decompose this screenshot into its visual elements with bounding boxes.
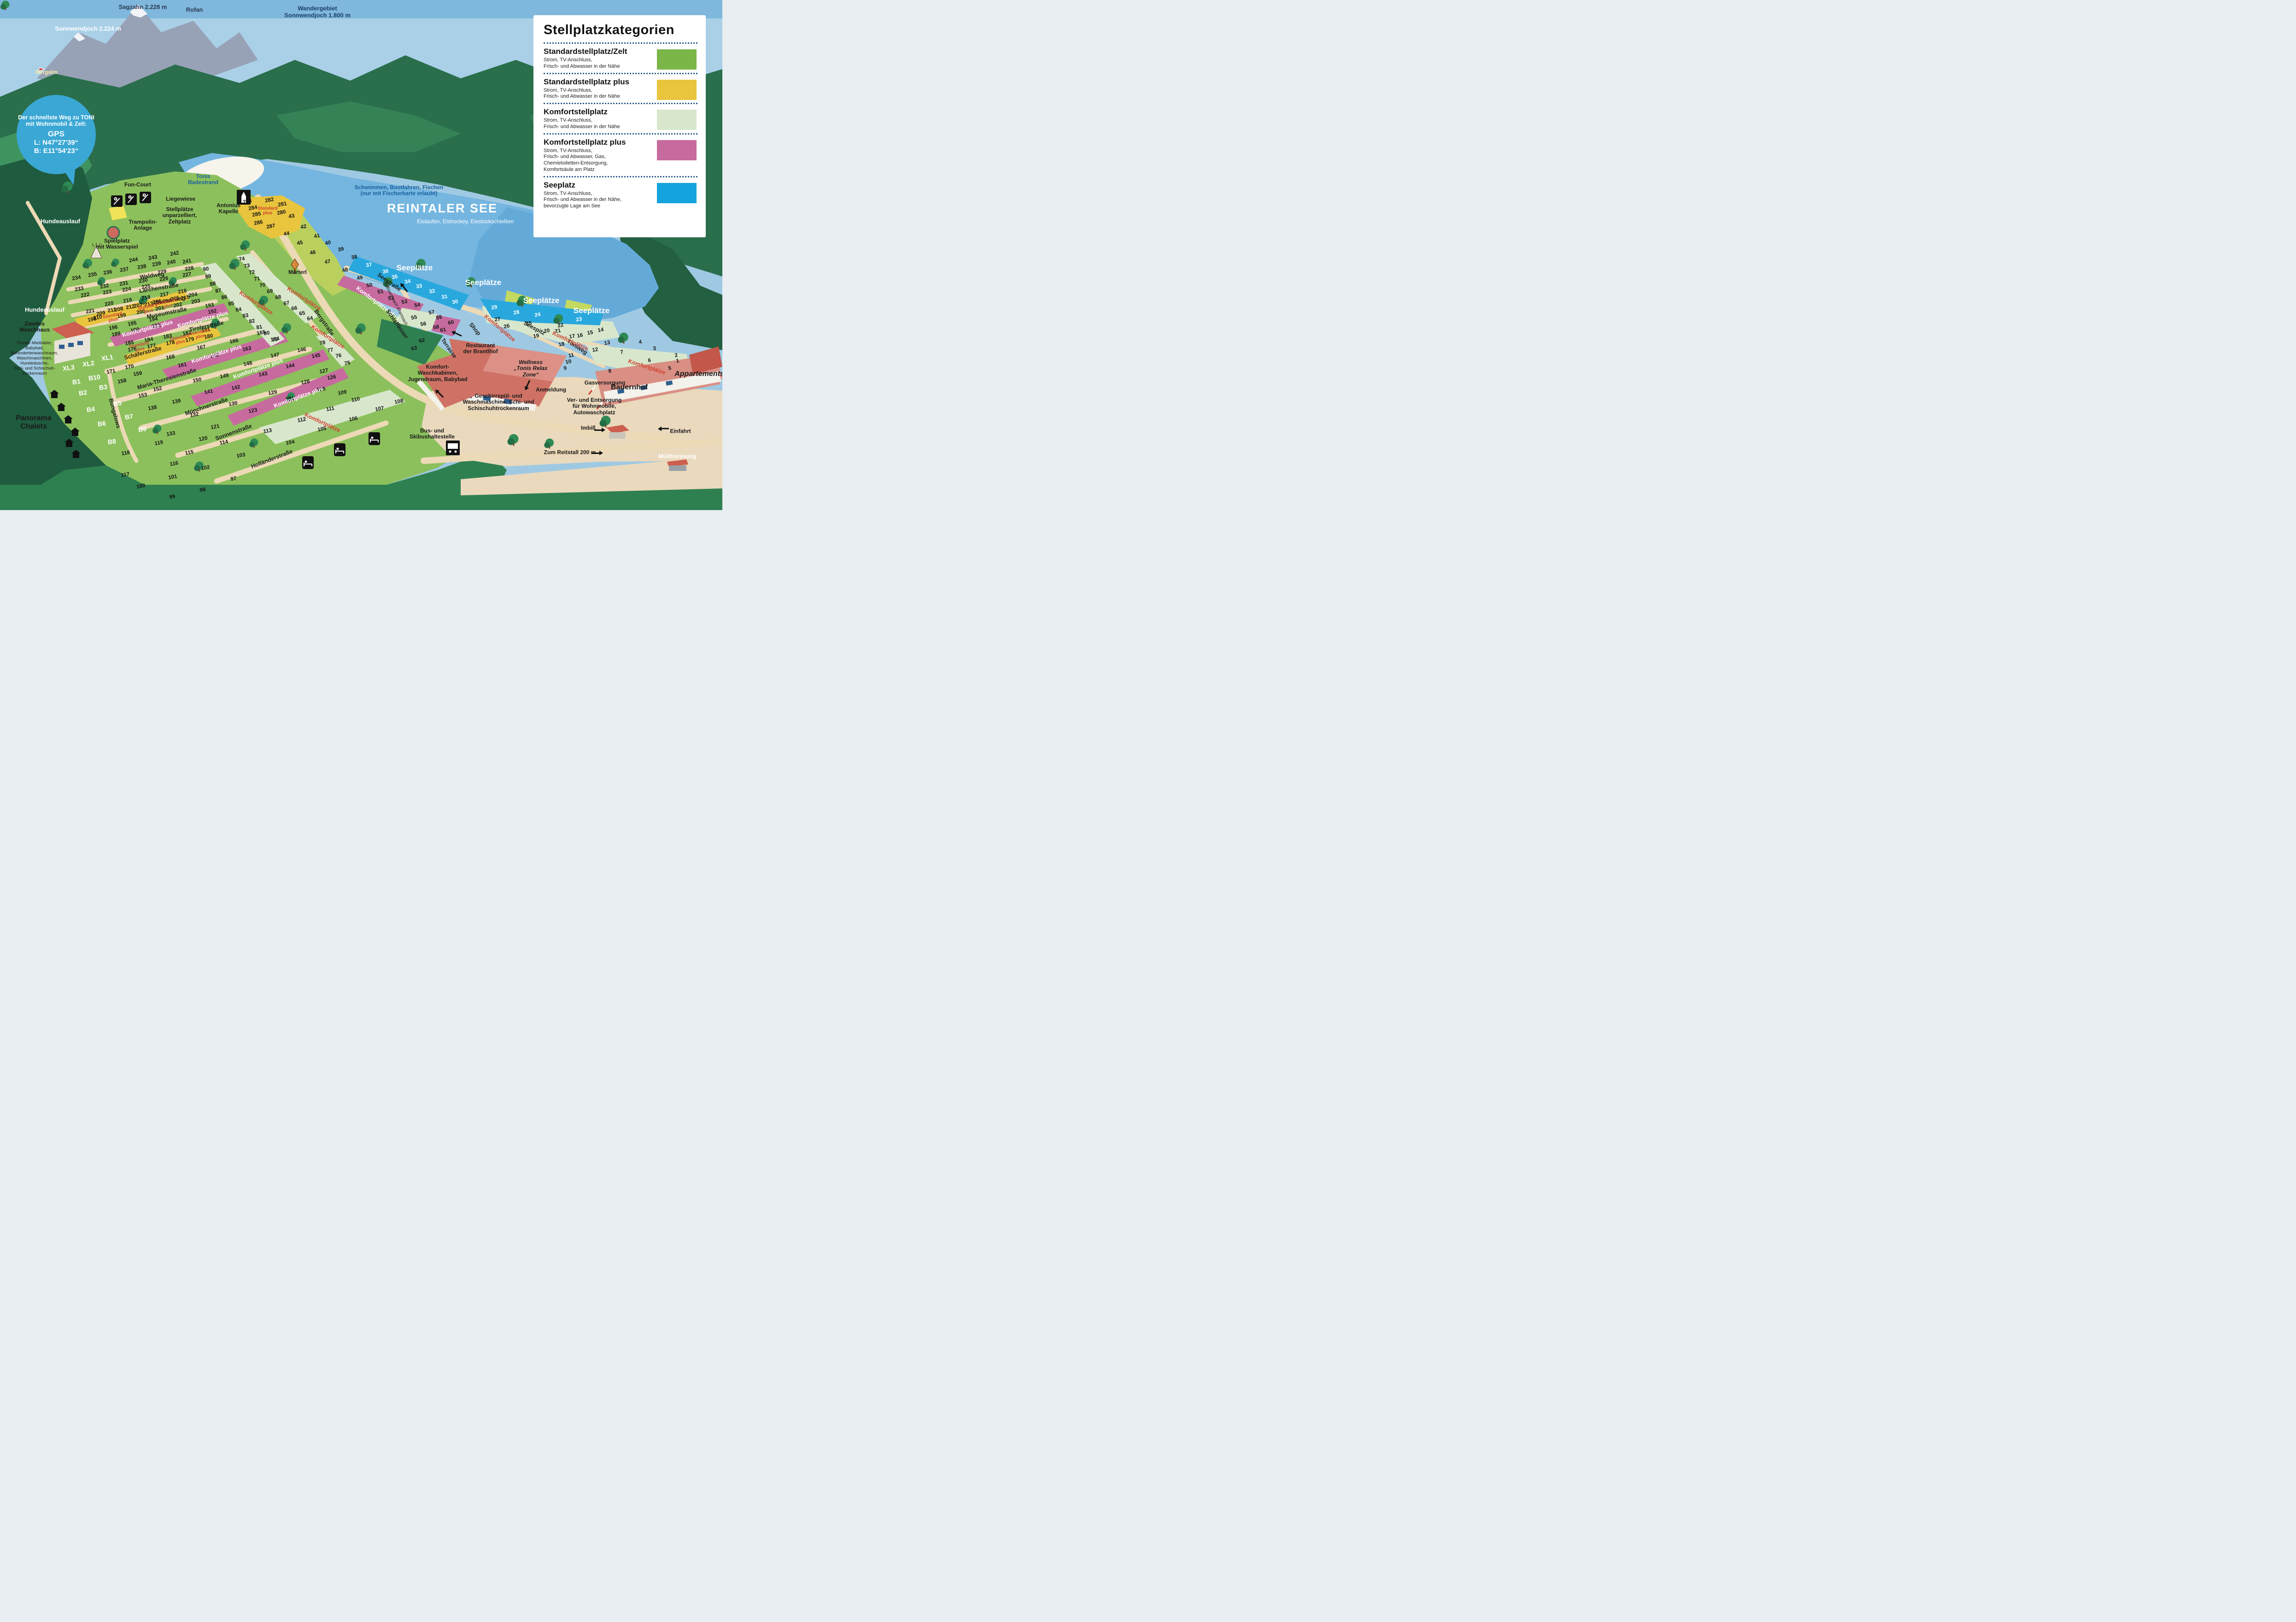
- facility-label-m-lltrennung: Mülltrennung: [658, 453, 696, 460]
- facility-label-trampolin-: Trampolin- Anlage: [129, 219, 157, 232]
- pitch-153: 153: [138, 392, 147, 400]
- area-label-9: Komfortplätze: [551, 330, 589, 352]
- unit-label-xl2: XL2: [82, 359, 95, 368]
- pitch-168: 168: [165, 354, 175, 361]
- pitch-46: 46: [310, 250, 316, 257]
- legend-panel: Stellplatzkategorien Standardstellplatz/…: [533, 15, 706, 237]
- pitch-82: 82: [249, 318, 256, 325]
- area-label-17: Standard plus: [258, 206, 277, 216]
- pitch-23: 23: [576, 317, 583, 323]
- legend-title: Stellplatzkategorien: [544, 23, 697, 38]
- campground-map: 2342352362372382392402412422432442332222…: [0, 0, 722, 510]
- pitch-149: 149: [219, 373, 229, 380]
- pitch-80: 80: [264, 330, 270, 337]
- pitch-126: 126: [327, 374, 336, 382]
- pitch-170: 170: [124, 364, 134, 371]
- pitch-127: 127: [319, 368, 328, 375]
- facility-label-liegewiese: Liegewiese: [166, 196, 195, 202]
- pitch-142: 142: [231, 384, 240, 392]
- pitch-218: 218: [141, 294, 151, 302]
- pitch-286: 286: [253, 219, 263, 227]
- pitch-73: 73: [244, 263, 251, 270]
- facility-label-hundeauslauf: Hundeauslauf: [41, 218, 80, 225]
- pitch-64: 64: [307, 316, 314, 323]
- pitch-101: 101: [168, 474, 177, 481]
- unit-label-b5: B5: [113, 400, 122, 408]
- pitch-54: 54: [414, 302, 421, 309]
- pitch-75: 75: [344, 360, 351, 367]
- unit-label-xl3: XL3: [62, 364, 75, 372]
- pitch-51: 51: [377, 289, 384, 296]
- pitch-120: 120: [198, 435, 208, 443]
- legend-item-desc: Strom, TV-Anschluss, Frisch- und Abwasse…: [544, 118, 650, 130]
- pitch-102: 102: [200, 464, 210, 472]
- pitch-30: 30: [452, 299, 459, 306]
- gps-title: GPS: [17, 129, 96, 139]
- pitch-241: 241: [182, 258, 192, 265]
- pitch-221: 221: [85, 308, 95, 315]
- pitch-119: 119: [154, 440, 164, 447]
- arrow-icon: [437, 391, 444, 398]
- pitch-111: 111: [326, 405, 335, 413]
- pitch-106: 106: [348, 416, 358, 423]
- pitch-29: 29: [491, 305, 498, 311]
- pitch-159: 159: [133, 370, 142, 378]
- pitch-77: 77: [327, 347, 334, 354]
- pitch-138: 138: [147, 405, 157, 412]
- pitch-8: 8: [608, 368, 612, 375]
- street-label-m-nchnerstra-e: Münchnerstraße: [184, 396, 229, 417]
- pitch-69: 69: [267, 288, 274, 295]
- pitch-59: 59: [436, 315, 443, 322]
- pitch-128: 128: [300, 379, 310, 386]
- area-label-1: Seeplätze: [465, 278, 501, 287]
- pitch-10: 10: [565, 359, 572, 366]
- pitch-53: 53: [401, 299, 408, 306]
- pitch-85: 85: [228, 301, 235, 308]
- facility-label-spielplatz: Spielplatz mit Wasserspiel: [96, 238, 138, 251]
- pitch-98: 98: [199, 487, 206, 494]
- mountain-label-2: Wandergebiet Sonnwendjoch 1.800 m: [284, 5, 351, 18]
- pitch-33: 33: [416, 283, 423, 290]
- pitch-287: 287: [266, 223, 275, 230]
- pitch-219: 219: [123, 297, 132, 305]
- pitch-3: 3: [653, 346, 657, 352]
- pitch-224: 224: [122, 286, 131, 294]
- pitch-50: 50: [366, 282, 373, 289]
- area-label-27: Terrasse: [439, 337, 457, 359]
- pitch-56: 56: [420, 321, 427, 328]
- pitch-239: 239: [152, 261, 161, 268]
- pitch-196: 196: [108, 324, 118, 332]
- facility-label-marterl: Marterl: [288, 269, 307, 275]
- lake-name-label: REINTALER SEE: [387, 201, 498, 215]
- pitch-66: 66: [291, 306, 298, 312]
- pitch-18: 18: [558, 341, 565, 348]
- pitch-228: 228: [184, 265, 194, 273]
- unit-label-b10: B10: [88, 373, 101, 382]
- pitch-45: 45: [297, 240, 304, 247]
- pitch-235: 235: [88, 271, 97, 279]
- pitch-24: 24: [534, 312, 541, 319]
- pitch-216: 216: [177, 288, 187, 295]
- pitch-222: 222: [80, 292, 90, 299]
- facility-label-wellness: Wellness „Tonis Relax Zone“: [514, 359, 548, 378]
- pitch-237: 237: [119, 266, 129, 274]
- pitch-76: 76: [335, 353, 342, 360]
- facility-label-imbi-: Imbiß: [581, 425, 596, 431]
- pitch-79: 79: [272, 337, 279, 344]
- pitch-68: 68: [275, 294, 282, 301]
- street-label-holl-nderstra-e: Holländerstraße: [250, 448, 293, 470]
- pitch-9: 9: [563, 365, 568, 372]
- legend-color-swatch: [657, 183, 697, 203]
- pitch-7: 7: [620, 349, 624, 356]
- pitch-110: 110: [351, 396, 361, 404]
- pitch-1: 1: [676, 358, 680, 364]
- pitch-70: 70: [259, 282, 266, 289]
- pitch-130: 130: [228, 400, 238, 408]
- pitch-236: 236: [103, 269, 112, 276]
- pitch-87: 87: [215, 288, 222, 295]
- pitch-35: 35: [392, 274, 398, 281]
- pitch-11: 11: [568, 353, 574, 359]
- pitch-88: 88: [210, 281, 217, 288]
- legend-color-swatch: [657, 49, 697, 70]
- pitch-40: 40: [325, 240, 332, 247]
- area-label-10: Komfortplätze: [627, 358, 666, 376]
- pitch-49: 49: [357, 275, 363, 282]
- facility-label-antonius: Antonius Kapelle: [217, 203, 240, 215]
- pitch-220: 220: [104, 300, 114, 308]
- facility-label-tonis: Tonis Badestrand: [188, 174, 218, 186]
- legend-item-desc: Strom, TV-Anschluss, Frisch- und Abwasse…: [544, 148, 650, 173]
- pitch-74: 74: [239, 256, 246, 263]
- area-label-0: Seeplätze: [397, 263, 433, 272]
- pitch-203: 203: [191, 298, 200, 306]
- pitch-100: 100: [136, 483, 146, 490]
- pitch-116: 116: [170, 460, 179, 468]
- pitch-86: 86: [221, 294, 228, 301]
- pitch-38: 38: [351, 254, 358, 261]
- pitch-48: 48: [342, 267, 349, 274]
- area-label-3: Seeplätze: [574, 306, 609, 315]
- pitch-143: 143: [258, 371, 268, 378]
- legend-item-desc: Strom, TV-Anschluss, Frisch- und Abwasse…: [544, 88, 650, 100]
- pitch-37: 37: [366, 262, 373, 269]
- pitch-123: 123: [248, 407, 258, 415]
- pitch-89: 89: [205, 274, 212, 281]
- arrow-icon: [661, 428, 669, 429]
- pitch-284: 284: [248, 205, 258, 212]
- facility-label-zweites: Zweites Waschhaus: [19, 321, 50, 334]
- pitch-44: 44: [283, 231, 290, 238]
- pitch-78: 78: [319, 340, 326, 347]
- pitch-107: 107: [375, 405, 384, 413]
- street-label-sonnenstra-e: Sonnenstraße: [214, 423, 252, 442]
- pitch-67: 67: [283, 300, 290, 307]
- arrow-icon: [402, 285, 408, 292]
- pitch-6: 6: [648, 358, 652, 364]
- area-label-14: Komfortplätze plus: [232, 357, 284, 380]
- pitch-99: 99: [169, 494, 176, 501]
- pitch-161: 161: [177, 362, 187, 369]
- pitch-282: 282: [264, 197, 274, 204]
- pitch-42: 42: [300, 224, 307, 231]
- pitch-65: 65: [299, 311, 306, 317]
- facility-label-komfort-: Komfort- Waschkabinen, Jugendraum, Babyb…: [408, 364, 467, 382]
- legend-item-1: Standardstellplatz plusStrom, TV-Anschlu…: [544, 73, 697, 103]
- mountain-label-3: Sonnwendjoch 2.224 m: [55, 26, 121, 33]
- pitch-5: 5: [668, 365, 672, 372]
- mountain-label-1: Rofan: [186, 7, 203, 14]
- area-label-26: Shop: [468, 322, 482, 337]
- area-label-2: Seeplätze: [523, 296, 559, 305]
- pitch-71: 71: [254, 276, 261, 283]
- pitch-240: 240: [166, 259, 176, 266]
- facility-label-appartements: Appartements: [674, 370, 722, 378]
- pitch-115: 115: [185, 449, 194, 457]
- arrow-icon: [592, 453, 600, 454]
- pitch-60: 60: [448, 320, 455, 327]
- unit-label-b8: B8: [107, 438, 117, 446]
- gps-lat: L: N47°27'39“: [17, 139, 96, 147]
- pitch-129: 129: [268, 389, 277, 397]
- pitch-84: 84: [235, 307, 242, 314]
- unit-label-b4: B4: [86, 405, 95, 414]
- street-label-maria-theresienstra-e: Maria-Theresienstraße: [136, 367, 197, 391]
- arrow-icon: [526, 380, 531, 388]
- pitch-223: 223: [102, 289, 112, 296]
- pitch-12: 12: [592, 347, 599, 354]
- gps-lon: B: E11°54'23“: [17, 147, 96, 155]
- pitch-189: 189: [111, 331, 121, 338]
- pitch-32: 32: [429, 288, 436, 295]
- facility-label-hundeauslauf: Hundeauslauf: [25, 307, 64, 314]
- facility-label-private-mietb-der-: Private Mietbäder, Babybad, Behindertenw…: [11, 341, 58, 376]
- unit-label-b3: B3: [99, 383, 108, 392]
- unit-label-b1: B1: [72, 378, 81, 386]
- pitch-158: 158: [117, 378, 127, 385]
- legend-item-0: Standardstellplatz/ZeltStrom, TV-Anschlu…: [544, 42, 697, 73]
- pitch-58: 58: [433, 324, 440, 331]
- pitch-103: 103: [236, 452, 246, 459]
- unit-label-b7: B7: [124, 413, 134, 421]
- pitch-13: 13: [604, 340, 611, 347]
- area-label-15: Komfortplätze plus: [273, 385, 324, 409]
- legend-item-3: Komfortstellplatz plusStrom, TV-Anschlus…: [544, 133, 697, 176]
- unit-label-xl1: XL1: [101, 353, 114, 362]
- pitch-148: 148: [243, 360, 252, 368]
- mountain-label-4: Bergalm: [35, 69, 58, 75]
- pitch-90: 90: [203, 266, 210, 273]
- facility-label-panorama: Panorama Chalets: [16, 414, 51, 431]
- facility-label-ver-und-entsorgung: Ver- und Entsorgung für Wohnmobile, Auto…: [567, 397, 622, 416]
- legend-item-desc: Strom, TV-Anschluss, Frisch- und Abwasse…: [544, 191, 650, 210]
- legend-item-4: SeeplatzStrom, TV-Anschluss, Frisch- und…: [544, 176, 697, 212]
- pitch-234: 234: [71, 275, 81, 282]
- pitch-34: 34: [404, 279, 411, 286]
- legend-item-desc: Strom, TV-Anschluss, Frisch- und Abwasse…: [544, 57, 650, 70]
- arrow-icon: [594, 429, 602, 431]
- pitch-104: 104: [285, 439, 295, 447]
- area-label-22: Standard plus: [170, 334, 191, 347]
- facility-label-einfahrt: Einfahrt: [670, 428, 691, 434]
- pitch-167: 167: [196, 344, 206, 352]
- pitch-152: 152: [152, 386, 162, 393]
- arrow-icon: [454, 332, 462, 337]
- pitch-81: 81: [256, 324, 263, 331]
- pitch-163: 163: [242, 346, 252, 353]
- legend-color-swatch: [657, 110, 697, 130]
- pitch-28: 28: [513, 310, 520, 317]
- pitch-150: 150: [192, 377, 202, 384]
- pitch-242: 242: [170, 250, 179, 258]
- gps-bubble: Der schnellste Weg zu TONI mit Wohnmobil…: [17, 95, 96, 174]
- pitch-171: 171: [106, 368, 116, 376]
- pitch-4: 4: [638, 339, 643, 346]
- pitch-121: 121: [210, 423, 220, 431]
- facility-label-zum-reitstall-200-m: Zum Reitstall 200 m: [544, 449, 596, 455]
- pitch-118: 118: [121, 450, 131, 457]
- pitch-117: 117: [121, 471, 130, 479]
- facility-label-anmeldung: Anmeldung: [536, 387, 566, 393]
- pitch-57: 57: [428, 310, 435, 317]
- pitch-14: 14: [597, 327, 604, 334]
- pitch-204: 204: [188, 292, 198, 299]
- pitch-195: 195: [127, 320, 137, 328]
- mountain-label-0: Sagzahn 2.228 m: [119, 4, 167, 11]
- facility-label-restaurant: Restaurant der Brantlhof: [463, 343, 498, 355]
- pitch-283: 283: [242, 198, 252, 206]
- pitch-281: 281: [277, 201, 287, 208]
- pitch-47: 47: [324, 259, 331, 266]
- pitch-146: 146: [297, 347, 306, 354]
- pitch-243: 243: [148, 254, 158, 262]
- pitch-198: 198: [87, 316, 97, 323]
- facility-label-stellpl-tze: Stellplätze unparzelliert, Zeltplatz: [163, 206, 197, 225]
- pitch-238: 238: [137, 264, 146, 271]
- lake-winter-label: Eislaufen, Eishockey, Eisstockschießen: [417, 218, 514, 224]
- unit-label-b9: B9: [138, 425, 147, 434]
- pitch-15: 15: [587, 330, 594, 337]
- pitch-139: 139: [171, 398, 181, 405]
- pitch-16: 16: [577, 333, 584, 340]
- pitch-97: 97: [230, 476, 237, 483]
- lake-activities-label: Schwimmen, Bootfahren, Fischen (nur mit …: [355, 185, 444, 197]
- legend-item-2: KomfortstellplatzStrom, TV-Anschluss, Fr…: [544, 103, 697, 133]
- pitch-31: 31: [441, 294, 448, 301]
- unit-label-b6: B6: [97, 420, 106, 428]
- pitch-244: 244: [129, 257, 138, 264]
- legend-color-swatch: [657, 80, 697, 100]
- pitch-108: 108: [394, 398, 404, 405]
- pitch-39: 39: [338, 247, 345, 253]
- pitch-83: 83: [242, 313, 249, 320]
- pitch-55: 55: [411, 315, 418, 322]
- legend-color-swatch: [657, 140, 697, 160]
- pitch-109: 109: [337, 389, 347, 397]
- pitch-62: 62: [419, 338, 426, 345]
- pitch-280: 280: [276, 209, 286, 217]
- pitch-63: 63: [411, 346, 418, 353]
- facility-label-bus-und: Bus- und Skibushaltestelle: [410, 428, 455, 441]
- pitch-72: 72: [249, 270, 256, 276]
- pitch-233: 233: [74, 286, 84, 293]
- gps-intro: Der schnellste Weg zu TONI mit Wohnmobil…: [17, 114, 96, 128]
- pitch-145: 145: [311, 353, 321, 360]
- facility-label-fun-court: Fun-Court: [124, 182, 151, 188]
- pitch-144: 144: [285, 363, 295, 370]
- facility-label-geschirrsp-l-und: Geschirrspül- und Waschmaschine, Schi- u…: [463, 393, 534, 411]
- pitch-141: 141: [204, 388, 213, 396]
- pitch-61: 61: [440, 327, 447, 334]
- unit-label-b2: B2: [78, 389, 88, 397]
- pitch-113: 113: [263, 428, 273, 435]
- pitch-43: 43: [288, 213, 295, 220]
- facility-label-bauernhof: Bauernhof: [611, 383, 648, 392]
- pitch-133: 133: [166, 430, 176, 438]
- pitch-41: 41: [314, 233, 321, 240]
